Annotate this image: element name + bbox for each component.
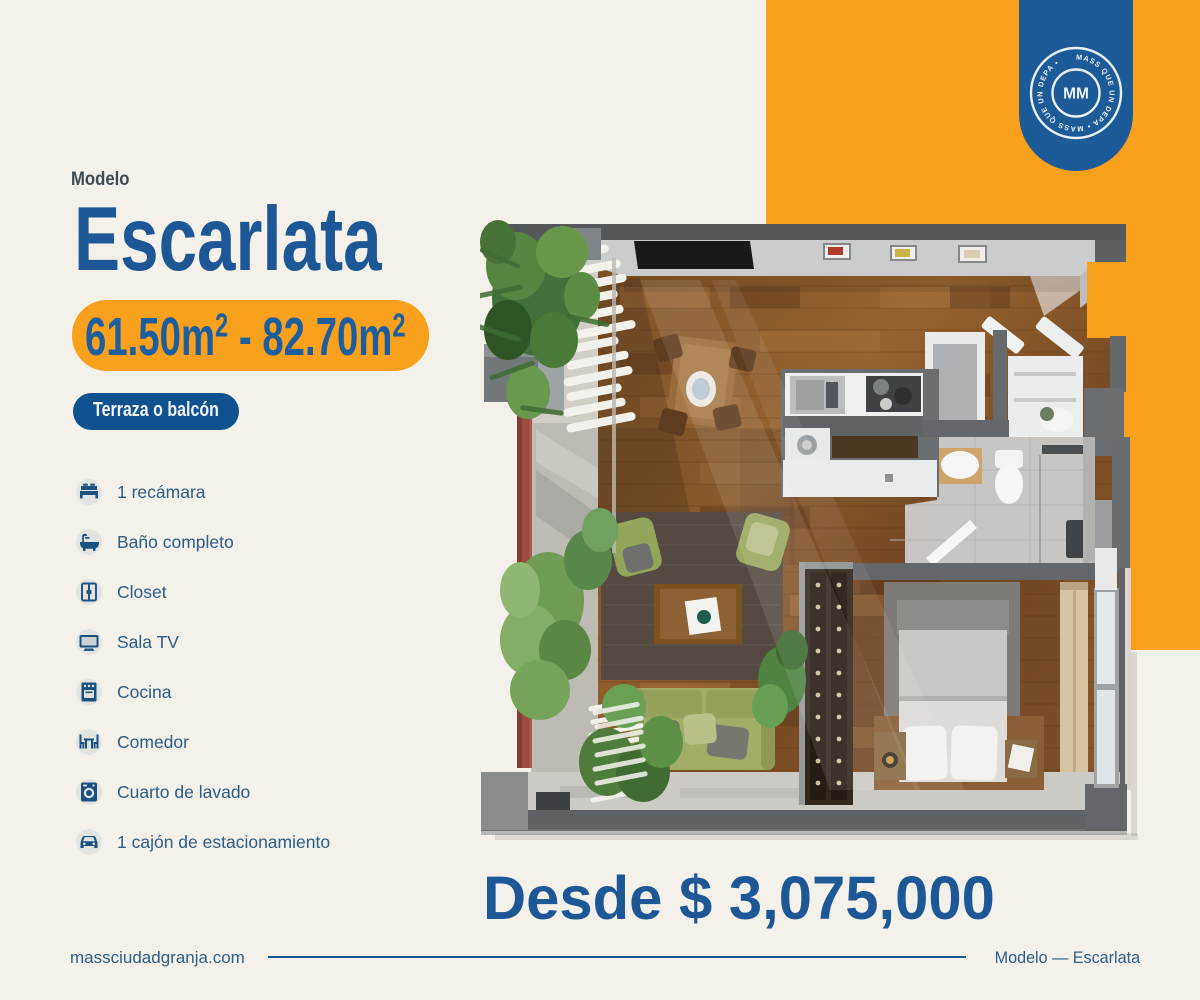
- svg-text:MM: MM: [1063, 86, 1089, 103]
